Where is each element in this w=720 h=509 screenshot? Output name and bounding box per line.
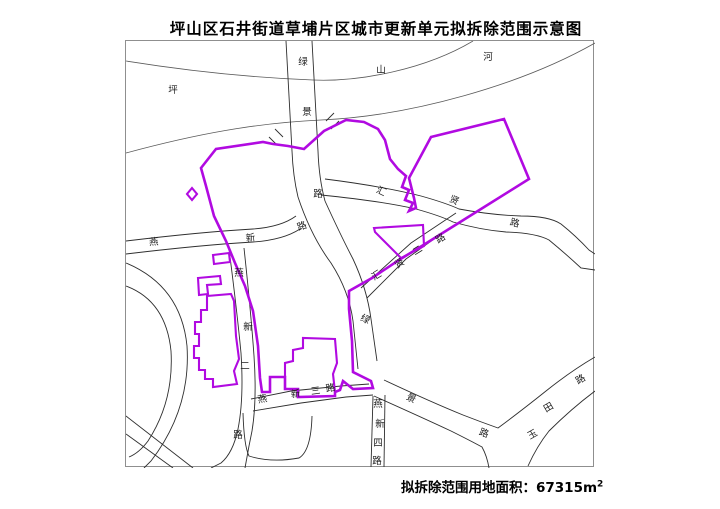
- road-label: 路: [433, 231, 448, 246]
- road-label: 贤: [393, 256, 407, 271]
- demolition-boundary-detail: [213, 253, 230, 264]
- road-label: 四: [373, 438, 383, 449]
- road-line: [384, 395, 385, 467]
- bridge-tick: [275, 129, 283, 137]
- road-label: 新: [290, 387, 302, 400]
- road-label: 新: [243, 321, 253, 333]
- road-label: 新: [245, 231, 257, 244]
- road-label: 景: [404, 392, 417, 406]
- demolition-boundary-outline: [201, 119, 529, 397]
- demolition-boundary-detail: [187, 188, 197, 200]
- road-label: 河: [483, 51, 493, 63]
- road-line: [298, 197, 358, 369]
- road-label: 景: [302, 107, 312, 118]
- road-label: 新: [375, 418, 385, 430]
- road-label: 玉: [526, 427, 540, 442]
- road-label: 山: [376, 65, 386, 76]
- road-label: 燕: [234, 267, 244, 279]
- area-unit: m: [583, 480, 597, 496]
- road-label: 绿: [298, 56, 308, 68]
- road-label: 贤: [447, 194, 461, 208]
- road-label: 田: [542, 401, 556, 415]
- area-label: 拟拆除范围用地面积：: [401, 480, 536, 496]
- road-label: 燕: [257, 392, 269, 406]
- area-value: 67315: [536, 480, 583, 496]
- road-label: 燕: [373, 398, 383, 410]
- road-label: 路: [478, 426, 492, 441]
- road-line: [126, 286, 171, 457]
- road-line: [244, 248, 255, 468]
- area-note: 拟拆除范围用地面积：67315m2: [401, 476, 603, 496]
- road-line: [126, 263, 187, 468]
- road-line: [528, 391, 595, 466]
- map-canvas: 坪山河绿景路燕新路汇贤路汇贤二路绿景路燕新二路燕新三路燕新四路玉田路: [125, 40, 594, 467]
- road-label: 燕: [148, 236, 159, 249]
- map-drawing: 坪山河绿景路燕新路汇贤路汇贤二路绿景路燕新二路燕新三路燕新四路玉田路: [126, 41, 595, 468]
- road-label: 路: [233, 429, 243, 441]
- area-unit-sup: 2: [597, 480, 603, 490]
- road-line: [286, 41, 298, 197]
- road-label: 三: [310, 385, 321, 397]
- page: { "title": "坪山区石井街道草埔片区城市更新单元拟拆除范围示意图", …: [0, 0, 720, 509]
- demolition-boundary-detail: [198, 276, 221, 295]
- road-label: 路: [573, 372, 588, 387]
- road-line: [325, 179, 595, 254]
- page-title: 坪山区石井街道草埔片区城市更新单元拟拆除范围示意图: [141, 17, 611, 39]
- road-label: 路: [372, 455, 382, 467]
- road-line: [126, 416, 193, 468]
- road-label: 坪: [168, 84, 178, 96]
- river-line: [126, 43, 595, 153]
- road-label: 二: [240, 361, 250, 372]
- road-line: [312, 41, 325, 201]
- road-label: 路: [313, 188, 323, 200]
- demolition-boundary-detail: [194, 294, 239, 387]
- road-label: 路: [509, 216, 522, 230]
- road-line: [374, 396, 489, 468]
- road-line: [321, 195, 595, 270]
